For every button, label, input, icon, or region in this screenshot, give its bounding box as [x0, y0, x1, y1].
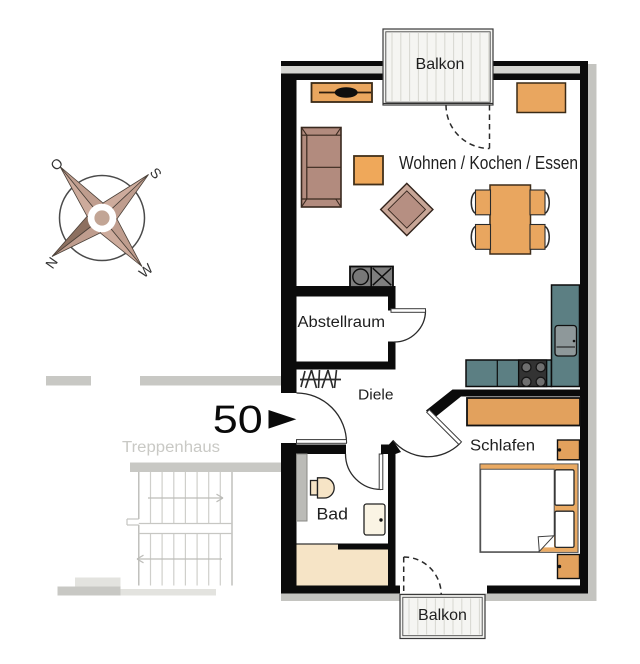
svg-text:Treppenhaus: Treppenhaus — [122, 439, 220, 456]
svg-text:Balkon: Balkon — [416, 56, 465, 73]
svg-text:Diele: Diele — [358, 387, 394, 404]
svg-text:Schlafen: Schlafen — [470, 438, 535, 455]
svg-text:Bad: Bad — [317, 506, 349, 524]
svg-text:Balkon: Balkon — [418, 607, 467, 624]
svg-text:Abstellraum: Abstellraum — [298, 314, 386, 331]
svg-text:50: 50 — [213, 399, 263, 442]
svg-text:Wohnen / Kochen / Essen: Wohnen / Kochen / Essen — [399, 153, 578, 173]
